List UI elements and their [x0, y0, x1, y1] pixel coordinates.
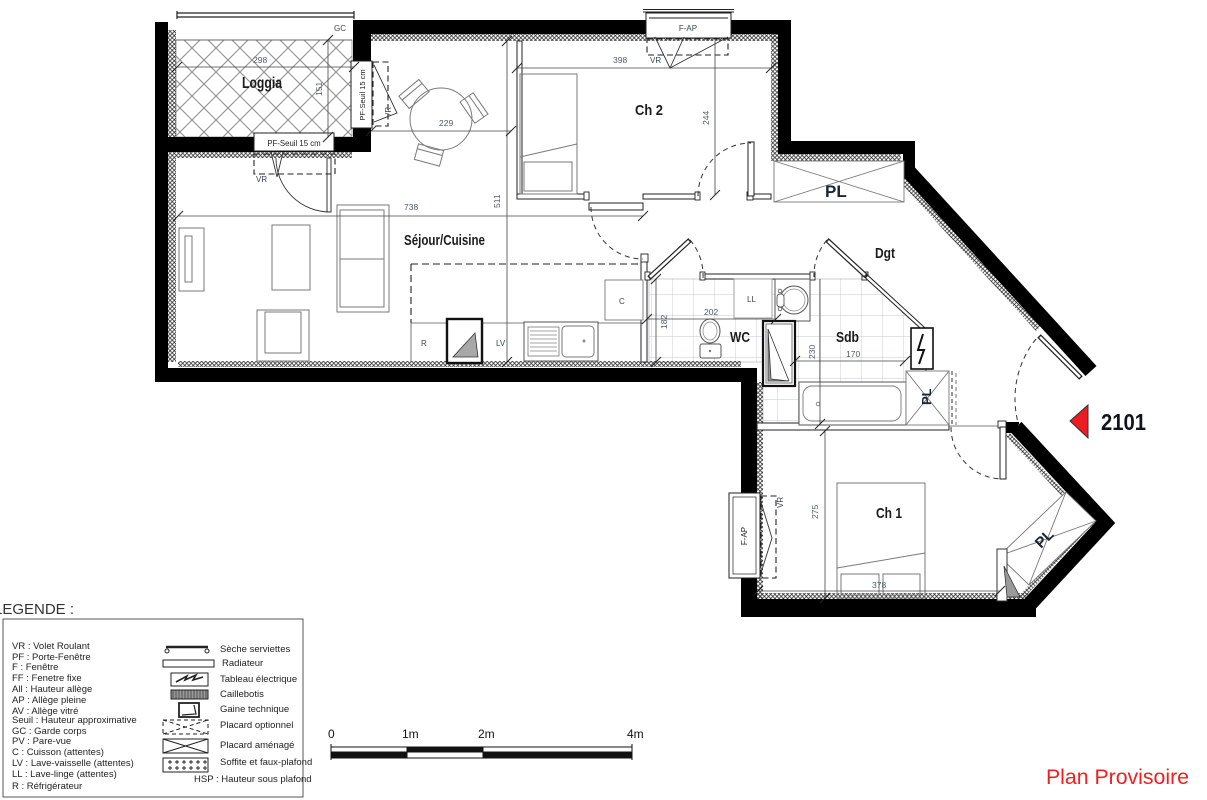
- svg-text:All : Hauteur allège: All : Hauteur allège: [12, 684, 92, 695]
- svg-text:VR: VR: [256, 175, 267, 184]
- svg-text:Radiateur: Radiateur: [222, 658, 263, 669]
- svg-text:F : Fenêtre: F : Fenêtre: [12, 662, 58, 673]
- svg-text:511: 511: [492, 194, 502, 208]
- svg-text:VR : Volet Roulant: VR : Volet Roulant: [12, 641, 90, 652]
- svg-text:PF-Seuil 15 cm: PF-Seuil 15 cm: [267, 139, 320, 148]
- svg-text:Ch 2: Ch 2: [635, 102, 663, 119]
- svg-text:AP : Allège pleine: AP : Allège pleine: [12, 695, 86, 706]
- svg-text:F-AP: F-AP: [740, 527, 749, 545]
- svg-text:Loggia: Loggia: [242, 75, 282, 92]
- svg-text:VR: VR: [384, 107, 393, 118]
- svg-text:229: 229: [439, 118, 453, 128]
- svg-text:Séjour/Cuisine: Séjour/Cuisine: [404, 232, 485, 249]
- svg-text:Caillebotis: Caillebotis: [220, 689, 264, 700]
- svg-text:Soffite et faux-plafond: Soffite et faux-plafond: [220, 757, 312, 768]
- svg-text:PF-Seuil 15 cm: PF-Seuil 15 cm: [358, 69, 367, 120]
- svg-text:Tableau électrique: Tableau électrique: [220, 674, 297, 685]
- svg-text:R: R: [421, 339, 427, 348]
- svg-text:Gaine technique: Gaine technique: [220, 704, 289, 715]
- svg-text:378: 378: [872, 580, 886, 590]
- svg-text:LV: LV: [496, 339, 506, 348]
- svg-text:Ch 1: Ch 1: [876, 505, 902, 522]
- svg-text:C: C: [619, 297, 625, 306]
- svg-text:Dgt: Dgt: [875, 245, 895, 262]
- svg-text:LL : Lave-linge (attentes): LL : Lave-linge (attentes): [12, 769, 117, 780]
- svg-text:F-AP: F-AP: [679, 24, 697, 33]
- svg-text:LV : Lave-vaisselle (attentes: LV : Lave-vaisselle (attentes): [12, 758, 134, 769]
- svg-text:738: 738: [404, 202, 418, 212]
- svg-text:Seuil : Hauteur approximative: Seuil : Hauteur approximative: [12, 715, 137, 726]
- svg-text:PL: PL: [919, 388, 934, 405]
- svg-text:Placard optionnel: Placard optionnel: [220, 720, 293, 731]
- svg-text:151: 151: [314, 82, 324, 96]
- svg-text:C : Cuisson (attentes): C : Cuisson (attentes): [12, 747, 104, 758]
- svg-text:170: 170: [846, 349, 860, 359]
- svg-text:398: 398: [613, 55, 627, 65]
- svg-text:GC: GC: [334, 24, 346, 33]
- svg-text:VR: VR: [776, 497, 785, 508]
- svg-text:298: 298: [253, 55, 267, 65]
- svg-text:4m: 4m: [627, 727, 644, 741]
- svg-text:230: 230: [807, 345, 817, 359]
- svg-text:PL: PL: [825, 182, 847, 201]
- svg-text:244: 244: [701, 111, 711, 125]
- svg-text:VR: VR: [650, 56, 661, 65]
- svg-text:182: 182: [659, 315, 669, 329]
- svg-text:202: 202: [704, 307, 718, 317]
- svg-text:LEGENDE :: LEGENDE :: [0, 601, 74, 618]
- svg-text:Plan Provisoire: Plan Provisoire: [1046, 766, 1189, 789]
- svg-text:WC: WC: [730, 329, 750, 346]
- svg-text:PV : Pare-vue: PV : Pare-vue: [12, 736, 71, 747]
- svg-text:Sdb: Sdb: [836, 329, 859, 346]
- svg-text:LL: LL: [747, 295, 756, 304]
- svg-text:1m: 1m: [402, 727, 419, 741]
- svg-text:Sèche serviettes: Sèche serviettes: [220, 644, 290, 655]
- svg-text:275: 275: [810, 505, 820, 519]
- svg-text:R : Réfrigérateur: R : Réfrigérateur: [12, 781, 82, 792]
- svg-text:Placard aménagé: Placard aménagé: [220, 740, 294, 751]
- svg-text:2101: 2101: [1101, 409, 1146, 435]
- svg-text:FF : Fenetre fixe: FF : Fenetre fixe: [12, 673, 82, 684]
- svg-text:2m: 2m: [478, 727, 495, 741]
- svg-text:0: 0: [328, 727, 335, 741]
- svg-text:HSP : Hauteur sous plafond: HSP : Hauteur sous plafond: [194, 774, 312, 785]
